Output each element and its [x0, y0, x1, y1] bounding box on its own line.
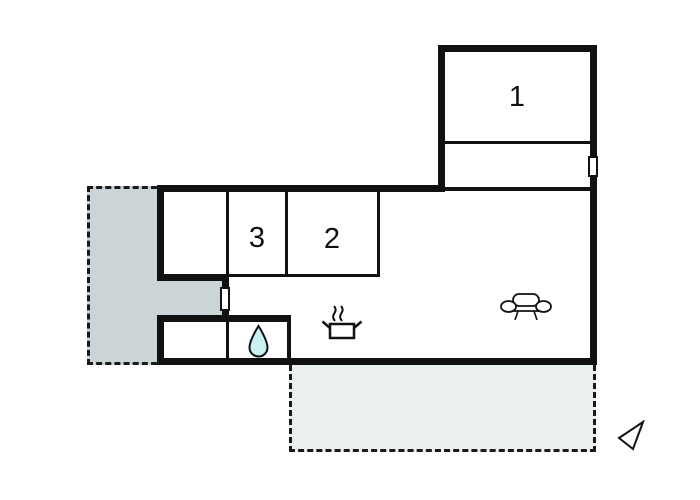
- wall-main-top: [157, 185, 445, 192]
- north-arrow-icon: [612, 415, 652, 455]
- sofa-armrest-right: [536, 301, 551, 312]
- wall-lower-rooms-top: [157, 315, 291, 322]
- sofa-leg-left: [515, 311, 518, 320]
- storage-room-area: [164, 322, 226, 358]
- north-arrow-shape: [619, 422, 643, 449]
- wall-entrance-room-bottom: [157, 274, 229, 281]
- sofa-armrest-left: [501, 301, 516, 312]
- entrance-passage-area: [157, 281, 223, 315]
- wall-upper-block-left: [438, 45, 445, 192]
- steam-line-2: [340, 306, 343, 321]
- wall-main-bottom: [157, 358, 597, 365]
- water-drop-shape: [250, 326, 268, 357]
- hallway-area: [445, 144, 590, 187]
- terrace-left-area: [87, 186, 157, 365]
- terrace-bottom-area: [289, 365, 596, 452]
- room-2-label: 2: [307, 223, 357, 255]
- wall-main-right: [590, 185, 597, 365]
- wall-main-left-upper: [157, 185, 164, 281]
- wall-room3-room2-divider: [285, 192, 288, 277]
- entrance-room-area: [164, 192, 226, 274]
- steam-line-1: [333, 306, 336, 321]
- floor-plan: 1 3 2: [0, 0, 700, 500]
- sofa-leg-right: [534, 311, 537, 320]
- pot-body: [330, 324, 354, 338]
- door-marker-passage: [220, 287, 230, 311]
- water-drop-icon: [246, 324, 271, 358]
- sofa-icon: [500, 292, 552, 322]
- wall-hallway-bottom: [445, 187, 590, 191]
- wall-upper-block-top: [438, 45, 597, 52]
- room-1-label: 1: [492, 81, 542, 113]
- wall-room1-bottom: [445, 141, 590, 144]
- wall-bathroom-right: [287, 322, 291, 358]
- window-marker-right-wall: [588, 156, 598, 177]
- stove-pot-icon: [318, 300, 364, 342]
- wall-entrance-room3-divider: [226, 192, 229, 277]
- living-kitchen-area: [380, 192, 590, 358]
- sofa-backrest: [513, 294, 539, 306]
- wall-rooms-bottom: [229, 274, 380, 277]
- wall-bathroom-left: [226, 322, 229, 358]
- wall-room2-right: [377, 192, 380, 277]
- room-3-label: 3: [232, 222, 282, 254]
